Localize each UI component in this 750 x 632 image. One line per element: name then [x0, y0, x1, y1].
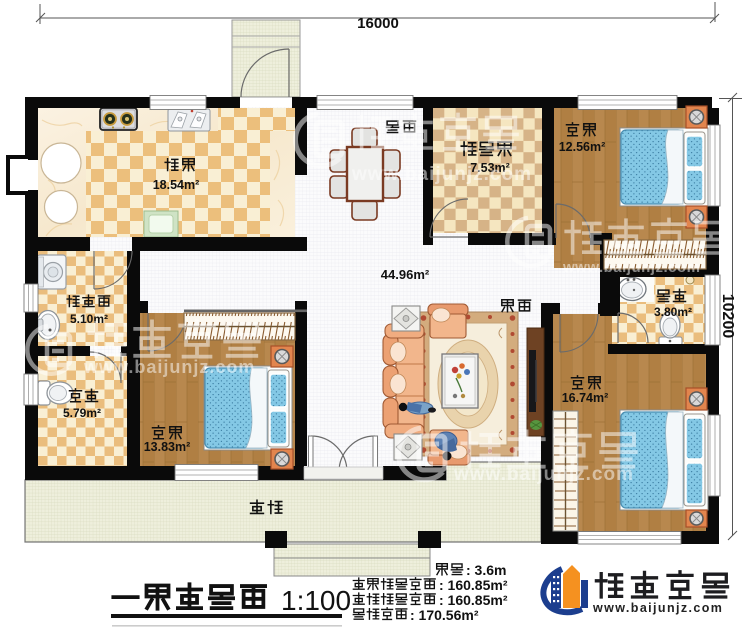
svg-text:16.74m²: 16.74m² — [562, 391, 609, 405]
svg-text:3.80m²: 3.80m² — [654, 305, 692, 319]
svg-text:12.56m²: 12.56m² — [559, 140, 606, 154]
svg-text:www.baijunjz.com: www.baijunjz.com — [351, 164, 532, 185]
svg-text:5.79m²: 5.79m² — [63, 406, 101, 420]
svg-text:www.baijunjz.com: www.baijunjz.com — [562, 259, 700, 276]
svg-text:44.96m²: 44.96m² — [381, 267, 430, 282]
svg-text:1:100: 1:100 — [281, 585, 351, 616]
svg-text:18.54m²: 18.54m² — [153, 178, 200, 192]
svg-text:16000: 16000 — [357, 15, 399, 32]
svg-text:5.10m²: 5.10m² — [70, 312, 108, 326]
svg-text:13.83m²: 13.83m² — [144, 440, 191, 454]
svg-text:www.baijunjz.com: www.baijunjz.com — [83, 357, 255, 377]
svg-text:www.baijunjz.com: www.baijunjz.com — [592, 601, 723, 615]
svg-text:: 160.85m²: : 160.85m² — [439, 592, 508, 608]
svg-text:: 160.85m²: : 160.85m² — [439, 577, 508, 593]
svg-text:: 3.6m: : 3.6m — [466, 562, 506, 578]
svg-text:www.baijunjz.com: www.baijunjz.com — [453, 464, 634, 485]
svg-text:10200: 10200 — [719, 294, 736, 339]
svg-text:: 170.56m²: : 170.56m² — [410, 607, 479, 623]
